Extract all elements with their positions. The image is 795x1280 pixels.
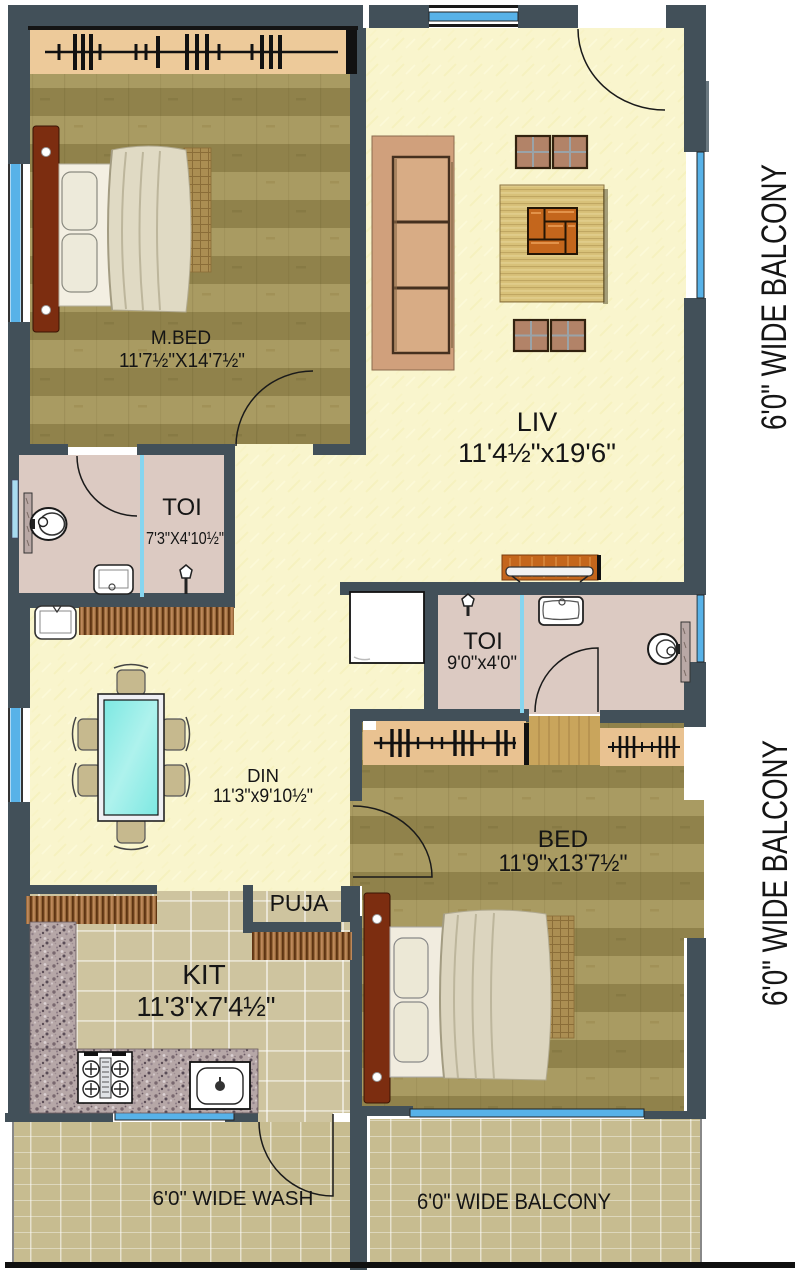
svg-text:KIT: KIT [182, 959, 226, 990]
svg-text:LIV: LIV [517, 407, 558, 437]
svg-text:11'7½"X14'7½": 11'7½"X14'7½" [119, 350, 245, 372]
svg-text:TOI: TOI [463, 628, 503, 655]
svg-text:11'9"x13'7½": 11'9"x13'7½" [499, 850, 628, 877]
svg-text:6'0" WIDE BALCONY: 6'0" WIDE BALCONY [417, 1189, 611, 1214]
svg-text:TOI: TOI [162, 494, 202, 521]
svg-text:11'3"x7'4½": 11'3"x7'4½" [137, 991, 276, 1022]
svg-text:M.BED: M.BED [151, 328, 211, 349]
svg-text:BED: BED [538, 826, 588, 853]
svg-text:PUJA: PUJA [270, 890, 329, 916]
svg-text:9'0"x4'0": 9'0"x4'0" [447, 653, 517, 674]
svg-text:6'0" WIDE WASH: 6'0" WIDE WASH [153, 1188, 314, 1210]
svg-text:6'0" WIDE BALCONY: 6'0" WIDE BALCONY [756, 740, 795, 1006]
svg-text:DIN: DIN [247, 765, 279, 786]
svg-text:6'0" WIDE BALCONY: 6'0" WIDE BALCONY [755, 164, 794, 430]
svg-text:7'3"X4'10½": 7'3"X4'10½" [146, 528, 224, 548]
svg-text:11'3"x9'10½": 11'3"x9'10½" [213, 785, 313, 807]
svg-text:11'4½"x19'6": 11'4½"x19'6" [458, 438, 616, 468]
